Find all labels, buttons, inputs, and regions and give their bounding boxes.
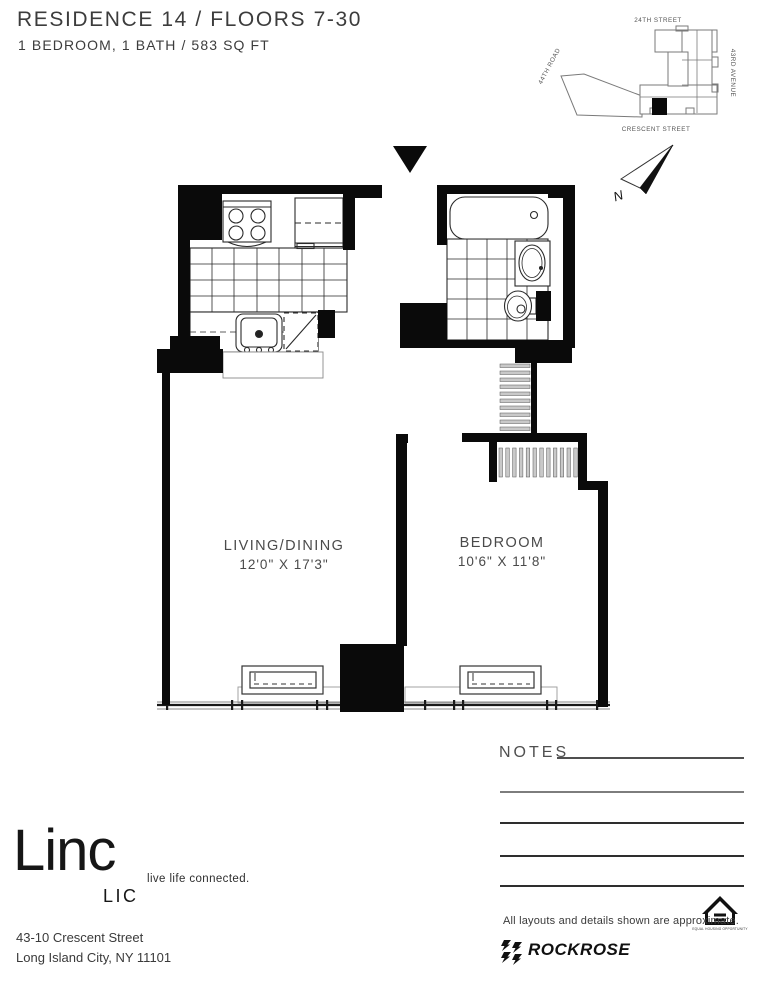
bathtub	[450, 197, 548, 239]
ptac-unit-living	[242, 666, 323, 694]
site-map: 24TH STREET CRESCENT STREET 43RD AVENUE …	[537, 17, 736, 133]
linen-closet	[500, 364, 530, 431]
stove	[223, 201, 271, 247]
notes-blank-line	[500, 822, 744, 824]
north-arrow-icon: N	[611, 145, 673, 204]
bedroom-name: BEDROOM	[458, 535, 546, 551]
notes-header-rule	[557, 757, 744, 759]
notes-label: NOTES	[499, 744, 569, 762]
linc-sub-wordmark: LIC	[103, 886, 139, 907]
refrigerator	[295, 198, 343, 249]
bedroom-dims: 10'6" X 11'8"	[458, 554, 546, 569]
kitchen-floor	[190, 248, 347, 312]
bedroom-label: BEDROOM 10'6" X 11'8"	[458, 535, 546, 569]
address-line-1: 43-10 Crescent Street	[16, 928, 171, 948]
dishwasher	[284, 313, 318, 351]
rockrose-wordmark: ROCKROSE	[528, 940, 630, 960]
bedroom-closet	[499, 448, 577, 477]
toilet	[505, 291, 552, 321]
ptac-unit-bedroom	[460, 666, 541, 694]
rockrose-mark-icon	[501, 940, 522, 965]
street-label-top: 24TH STREET	[634, 17, 682, 24]
kitchen-counter	[223, 352, 323, 378]
living-room-name: LIVING/DINING	[224, 538, 345, 554]
equal-housing-label: EQUAL HOUSING OPPORTUNITY	[692, 927, 748, 931]
vanity-sink	[515, 241, 550, 286]
linc-wordmark: Linc	[13, 822, 115, 880]
logo-tagline: live life connected.	[147, 873, 250, 885]
entry-arrow-icon	[393, 146, 427, 173]
living-room-dims: 12'0" X 17'3"	[224, 557, 345, 572]
street-label-bottom: CRESCENT STREET	[622, 126, 691, 133]
notes-blank-line	[500, 855, 744, 857]
floor-plan	[157, 146, 610, 712]
address-block: 43-10 Crescent Street Long Island City, …	[16, 928, 171, 968]
north-label: N	[611, 187, 625, 204]
street-label-left: 44TH ROAD	[537, 47, 562, 85]
street-label-right: 43RD AVENUE	[729, 49, 736, 97]
notes-blank-line	[500, 791, 744, 793]
living-room-label: LIVING/DINING 12'0" X 17'3"	[224, 538, 345, 572]
unit-location-marker	[652, 98, 667, 115]
address-line-2: Long Island City, NY 11101	[16, 948, 171, 968]
notes-blank-line	[500, 885, 744, 887]
disclaimer-text: All layouts and details shown are approx…	[503, 915, 739, 927]
floor-plan-sheet: RESIDENCE 14 / FLOORS 7-30 1 BEDROOM, 1 …	[0, 0, 762, 1000]
